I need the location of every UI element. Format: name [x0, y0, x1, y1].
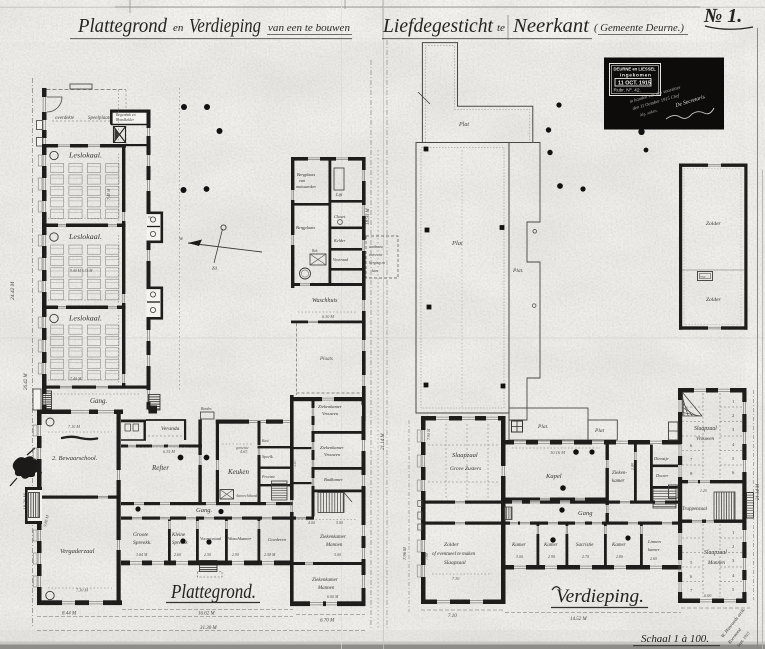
svg-text:kamer: kamer: [648, 547, 660, 552]
svg-text:Zolder: Zolder: [444, 542, 460, 548]
svg-text:26.42 M: 26.42 M: [24, 373, 29, 391]
svg-text:Zieken-: Zieken-: [612, 471, 627, 476]
svg-text:kamer: kamer: [612, 479, 625, 484]
svg-text:Regenbak en: Regenbak en: [115, 113, 136, 117]
svg-text:6.30 M: 6.30 M: [322, 314, 334, 319]
svg-text:Waschkamer: Waschkamer: [228, 536, 252, 541]
svg-text:Vergaderzaal: Vergaderzaal: [60, 548, 95, 555]
svg-text:mutsaarden: mutsaarden: [296, 184, 316, 189]
svg-text:7.98: 7.98: [424, 553, 429, 560]
svg-text:gemetste: gemetste: [236, 446, 249, 450]
svg-text:Goederen: Goederen: [268, 537, 287, 542]
svg-text:Neerkant: Neerkant: [512, 15, 589, 37]
svg-text:№ 1.: № 1.: [703, 5, 742, 27]
svg-text:Spreekk: Spreekk: [172, 541, 188, 546]
svg-text:Veranda: Veranda: [161, 426, 180, 432]
svg-text:Vrouwen: Vrouwen: [696, 436, 715, 442]
svg-text:Kapel: Kapel: [545, 473, 562, 480]
svg-text:Plat: Plat: [451, 240, 463, 247]
svg-text:Trappenzaal: Trappenzaal: [682, 507, 708, 512]
svg-text:Kelder: Kelder: [333, 238, 346, 243]
svg-text:3.84 M: 3.84 M: [136, 552, 148, 557]
svg-text:Gang: Gang: [578, 510, 593, 517]
svg-text:Leslokaal.: Leslokaal.: [68, 316, 103, 323]
svg-text:Plat.: Plat.: [512, 268, 524, 274]
svg-text:7.40 M: 7.40 M: [106, 188, 111, 200]
svg-text:DEURNE en LIESSEL: DEURNE en LIESSEL: [614, 67, 657, 72]
svg-text:9.40 M 6.35 M: 9.40 M 6.35 M: [70, 269, 93, 273]
svg-text:6.00 M: 6.00 M: [327, 594, 339, 599]
svg-text:Plat: Plat: [594, 428, 605, 434]
svg-text:24.42 M: 24.42 M: [9, 281, 16, 300]
svg-text:Waschhuis: Waschhuis: [312, 298, 338, 304]
svg-text:2.90: 2.90: [548, 554, 555, 559]
svg-text:1.20: 1.20: [700, 489, 707, 493]
svg-text:Vrouwen: Vrouwen: [322, 411, 339, 416]
svg-text:van een te bouwen: van een te bouwen: [268, 23, 350, 34]
svg-text:2.60: 2.60: [650, 556, 657, 561]
svg-text:7.30 M: 7.30 M: [76, 588, 88, 593]
svg-text:Sacristie: Sacristie: [576, 543, 594, 548]
svg-text:Verdieping: Verdieping: [189, 15, 261, 37]
svg-text:10.16 M: 10.16 M: [550, 450, 565, 455]
svg-text:2. Bewaarschool.: 2. Bewaarschool.: [52, 455, 98, 462]
svg-text:5.00: 5.00: [334, 552, 341, 557]
svg-text:overdekte: overdekte: [55, 116, 75, 121]
svg-text:18.93 M: 18.93 M: [366, 208, 371, 226]
svg-text:7.10: 7.10: [448, 614, 457, 619]
svg-text:Spreekk.: Spreekk.: [133, 540, 152, 546]
svg-text:7.30: 7.30: [452, 576, 460, 581]
svg-text:( Gemeente Deurne.): ( Gemeente Deurne.): [594, 23, 685, 34]
svg-text:trap: trap: [700, 275, 706, 279]
svg-text:Badkamer: Badkamer: [324, 477, 343, 482]
svg-text:en: en: [173, 22, 184, 34]
svg-text:7.96 M: 7.96 M: [426, 428, 431, 440]
svg-text:6.70 M: 6.70 M: [320, 619, 335, 624]
svg-text:Slaapzaal: Slaapzaal: [694, 426, 717, 432]
svg-text:Gang.: Gang.: [90, 397, 108, 405]
svg-text:Slaapzaal: Slaapzaal: [704, 550, 727, 556]
svg-text:2.50: 2.50: [204, 552, 211, 557]
svg-text:5.00: 5.00: [336, 520, 343, 525]
svg-text:6.35 M: 6.35 M: [163, 449, 175, 454]
svg-text:Bak: Bak: [312, 249, 318, 253]
svg-text:of eventueel te maken: of eventueel te maken: [432, 552, 476, 557]
svg-text:7.10 M: 7.10 M: [68, 424, 80, 429]
svg-text:Speelplaats: Speelplaats: [88, 116, 111, 121]
svg-text:7.96 M: 7.96 M: [402, 547, 407, 560]
svg-text:Voorraad: Voorraad: [333, 257, 349, 262]
svg-text:3.00: 3.00: [516, 554, 523, 559]
svg-text:Mannen: Mannen: [317, 586, 335, 591]
svg-text:Kleine: Kleine: [171, 533, 186, 538]
svg-text:Lift: Lift: [335, 192, 343, 197]
svg-text:2.80: 2.80: [616, 554, 623, 559]
svg-text:21.14 M: 21.14 M: [381, 433, 386, 451]
svg-text:14.52 M: 14.52 M: [570, 617, 588, 622]
svg-text:Ziekenkamer: Ziekenkamer: [318, 404, 342, 409]
svg-text:Rubr. Nº. 42.: Rubr. Nº. 42.: [614, 88, 641, 94]
svg-text:Slaapzaal: Slaapzaal: [444, 560, 466, 566]
svg-text:te: te: [497, 22, 505, 34]
svg-text:Keuken: Keuken: [227, 468, 249, 476]
svg-text:Bergplaats: Bergplaats: [296, 225, 315, 230]
svg-text:Liefdegesticht: Liefdegesticht: [382, 15, 493, 37]
svg-text:Ziekenkamer: Ziekenkamer: [320, 445, 344, 450]
svg-text:Leslokaal.: Leslokaal.: [68, 153, 103, 160]
svg-text:Portaal: Portaal: [198, 420, 203, 434]
svg-text:Plattegrond: Plattegrond: [77, 15, 168, 37]
svg-text:Ziekenkamer: Ziekenkamer: [312, 578, 338, 583]
svg-text:Kamer: Kamer: [543, 543, 558, 548]
svg-text:Kast: Kast: [261, 439, 270, 443]
svg-text:Plattegrond.: Plattegrond.: [170, 582, 256, 603]
svg-text:Aanrechtbank: Aanrechtbank: [235, 494, 257, 498]
svg-text:W: W: [148, 215, 151, 219]
svg-text:Linnen: Linnen: [647, 539, 661, 544]
svg-text:Closet: Closet: [334, 214, 346, 219]
svg-text:Plat: Plat: [458, 122, 469, 128]
svg-text:11 OCT. 1915: 11 OCT. 1915: [618, 80, 651, 86]
svg-text:Plat.: Plat.: [537, 424, 549, 430]
svg-text:4.00: 4.00: [308, 520, 315, 525]
svg-text:Dienstje: Dienstje: [653, 456, 669, 461]
svg-text:7.40 M: 7.40 M: [70, 376, 82, 381]
svg-text:berging en: berging en: [369, 261, 385, 265]
svg-text:Docter: Docter: [655, 473, 668, 478]
svg-text:2.58 M: 2.58 M: [264, 552, 276, 557]
svg-text:Plaats: Plaats: [319, 357, 333, 362]
svg-text:Kamer: Kamer: [611, 543, 626, 548]
svg-text:Vrouwen: Vrouwen: [324, 452, 341, 457]
svg-text:kan.: kan.: [372, 269, 378, 273]
svg-text:van: van: [299, 178, 305, 183]
svg-text:Gang.: Gang.: [196, 507, 212, 514]
svg-text:21.14 M: 21.14 M: [756, 483, 761, 500]
svg-text:3.10: 3.10: [293, 461, 297, 467]
svg-text:Ingekomen: Ingekomen: [620, 73, 652, 79]
svg-text:Kamer: Kamer: [511, 543, 526, 548]
svg-text:Grove Zusters: Grove Zusters: [450, 466, 481, 472]
svg-text:Brandkelder: Brandkelder: [116, 118, 135, 122]
svg-text:16.62 M: 16.62 M: [198, 612, 216, 617]
svg-text:2.60: 2.60: [174, 552, 181, 557]
svg-text:Verdieping.: Verdieping.: [556, 586, 644, 607]
svg-text:Voorportaal: Voorportaal: [200, 536, 222, 541]
svg-text:6.00: 6.00: [704, 593, 712, 598]
svg-text:2.90: 2.90: [232, 552, 239, 557]
svg-text:Slaapzaal: Slaapzaal: [452, 452, 478, 459]
svg-text:Provisie: Provisie: [261, 474, 275, 479]
svg-text:Bergplaats: Bergplaats: [297, 172, 316, 177]
svg-text:2.70: 2.70: [582, 554, 589, 559]
svg-text:Leslokaal.: Leslokaal.: [68, 234, 103, 241]
svg-text:Mannen: Mannen: [707, 560, 725, 566]
svg-text:Groote: Groote: [133, 532, 149, 538]
svg-text:Bordes: Bordes: [201, 407, 212, 411]
svg-text:Zolder: Zolder: [706, 221, 722, 227]
svg-text:8.44 M: 8.44 M: [62, 612, 77, 617]
svg-text:Ziekenkamer: Ziekenkamer: [320, 535, 346, 540]
svg-text:Mannen: Mannen: [325, 543, 343, 548]
svg-text:Zolder: Zolder: [706, 297, 722, 303]
svg-text:2.08: 2.08: [631, 463, 635, 470]
svg-text:Schaal 1 à 100.: Schaal 1 à 100.: [641, 634, 709, 645]
svg-text:Zd.: Zd.: [212, 266, 218, 271]
svg-text:31.30 M: 31.30 M: [200, 626, 218, 631]
svg-text:Spoelk.: Spoelk.: [262, 454, 274, 459]
svg-text:Refter: Refter: [151, 464, 169, 472]
